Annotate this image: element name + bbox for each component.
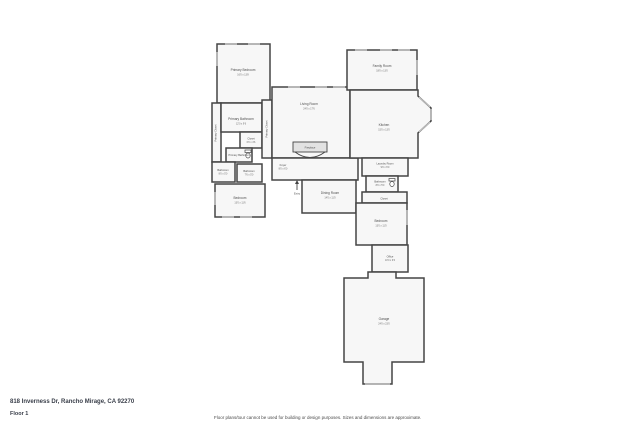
svg-text:Living Room: Living Room [300, 102, 318, 106]
room-label-bathroom-right: Bathroom 8'0 x 5'0 [374, 180, 385, 188]
svg-text:8'0 x 6'0: 8'0 x 6'0 [279, 168, 288, 171]
svg-text:Closet: Closet [380, 197, 388, 201]
room-label-closet-right: Closet [380, 197, 388, 201]
svg-text:Bedroom: Bedroom [234, 196, 247, 200]
room-label-primary-closet-left: Primary Closet [214, 124, 218, 141]
entry-label: Entry [294, 192, 301, 196]
svg-text:Primary Bathroom: Primary Bathroom [229, 153, 250, 157]
svg-text:Primary Closet: Primary Closet [265, 120, 269, 137]
svg-text:16'0 x 13'8: 16'0 x 13'8 [237, 74, 249, 77]
svg-text:Foyer: Foyer [280, 163, 287, 167]
svg-text:24'0 x 23'0: 24'0 x 23'0 [378, 323, 390, 326]
room-label-bathroom-left: Bathroom 8'0 x 5'0 [217, 168, 228, 176]
svg-text:9'0 x 6'0: 9'0 x 6'0 [381, 166, 390, 169]
svg-text:15'0 x 13'0: 15'0 x 13'0 [378, 129, 390, 132]
svg-text:Laundry Room: Laundry Room [376, 162, 393, 166]
svg-text:Primary Bathroom: Primary Bathroom [228, 117, 254, 121]
svg-text:Bathroom: Bathroom [243, 169, 254, 173]
svg-text:Bathroom: Bathroom [374, 180, 385, 184]
svg-text:8'0 x 5'0: 8'0 x 5'0 [376, 184, 385, 187]
floor-label: Floor 1 [10, 411, 28, 417]
svg-text:13'0 x 11'0: 13'0 x 11'0 [375, 225, 387, 228]
room-kitchen [350, 90, 431, 158]
svg-text:Kitchen: Kitchen [379, 123, 390, 127]
svg-text:Garage: Garage [379, 317, 390, 321]
svg-text:Primary Bedroom: Primary Bedroom [231, 68, 256, 72]
entry-arrow: Entry [294, 180, 301, 196]
svg-text:6'0 x 4'6: 6'0 x 4'6 [247, 141, 256, 144]
room-label-primary-bathroom-wc: Primary Bathroom [229, 153, 250, 157]
fireplace-label: Fireplace [305, 146, 316, 150]
room-label-primary-closet-right: Primary Closet [265, 120, 269, 137]
svg-text:13'0 x 11'6: 13'0 x 11'6 [234, 202, 246, 205]
svg-text:Primary Closet: Primary Closet [214, 124, 218, 141]
room-label-closet: Closet 6'0 x 4'6 [247, 137, 256, 145]
svg-text:Dining Room: Dining Room [321, 191, 340, 195]
room-label-bathroom-mid: Bathroom 7'6 x 5'0 [243, 169, 254, 177]
svg-text:12'0 x 9'6: 12'0 x 9'6 [236, 123, 247, 126]
svg-text:Office: Office [387, 255, 394, 259]
room-bedroom-bottom-left [215, 184, 265, 217]
svg-text:Closet: Closet [247, 137, 255, 141]
svg-text:18'0 x 13'0: 18'0 x 13'0 [376, 70, 388, 73]
address-text: 818 Inverness Dr, Rancho Mirage, CA 9227… [10, 399, 134, 405]
svg-text:Family Room: Family Room [373, 64, 392, 68]
svg-text:14'0 x 11'0: 14'0 x 11'0 [324, 197, 336, 200]
floorplan-svg: Fireplace Entry Primary Bedroom 16'0 x 1… [0, 0, 640, 427]
svg-text:Bathroom: Bathroom [217, 168, 228, 172]
svg-text:10'0 x 9'0: 10'0 x 9'0 [385, 259, 396, 262]
room-shapes [212, 44, 431, 384]
floorplan-page: Fireplace Entry Primary Bedroom 16'0 x 1… [0, 0, 640, 427]
svg-text:7'6 x 5'0: 7'6 x 5'0 [245, 174, 254, 177]
toilet-icon [389, 179, 395, 187]
svg-text:8'0 x 5'0: 8'0 x 5'0 [219, 173, 228, 176]
svg-text:24'0 x 17'6: 24'0 x 17'6 [303, 108, 315, 111]
room-garage [344, 272, 424, 384]
disclaimer-text: Floor plans/tour cannot be used for buil… [214, 415, 421, 420]
svg-text:Bedroom: Bedroom [375, 219, 388, 223]
